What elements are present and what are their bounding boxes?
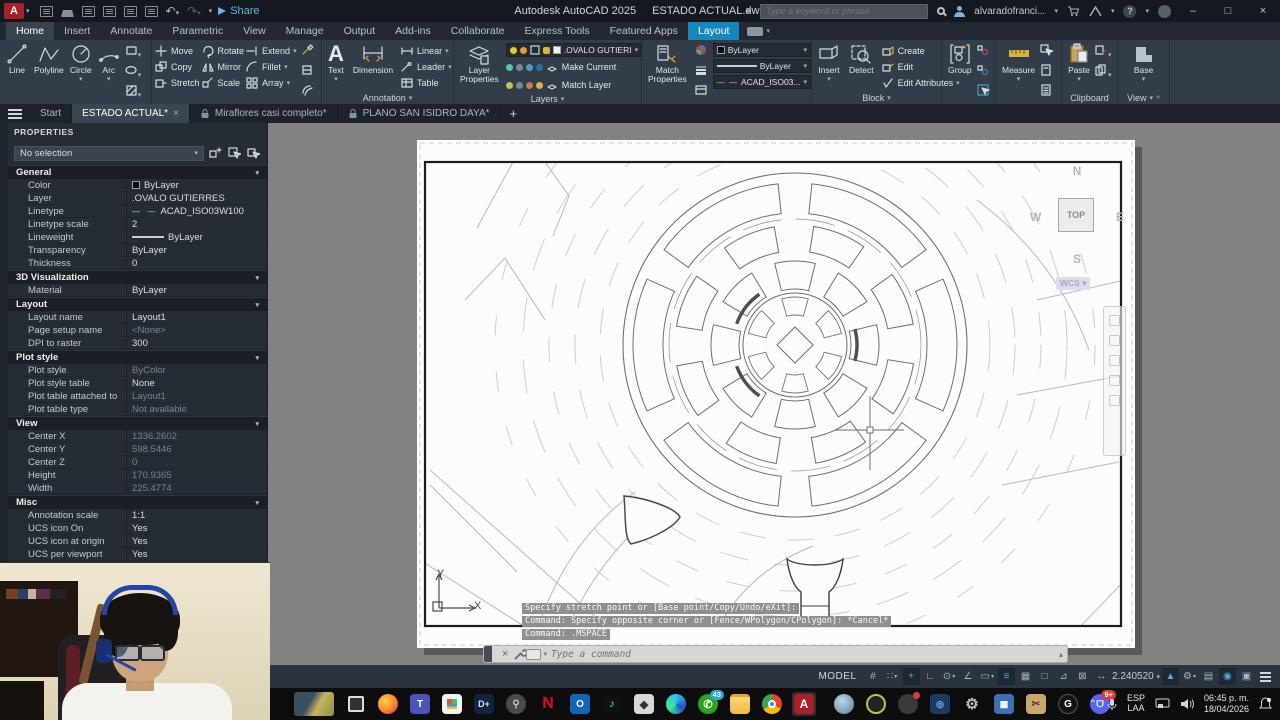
object-snap-tracking-icon[interactable]: ▭▾ bbox=[979, 668, 996, 685]
linetype-dropdown[interactable]: — — ACAD_ISO03... ▾ bbox=[713, 75, 811, 89]
command-line[interactable]: × ▾ ▴ bbox=[483, 645, 1068, 663]
prop-row-annotation-scale: Annotation scale1:1 bbox=[8, 509, 267, 522]
display-cast-icon[interactable] bbox=[1155, 698, 1170, 710]
explode-tool-icon[interactable] bbox=[301, 64, 314, 82]
ribbon: Line Polyline Circle▾ Arc▾ ▾ ▾ ▾ Draw▾ bbox=[0, 40, 1280, 104]
autocad-logo[interactable]: A bbox=[4, 3, 24, 19]
transparency-icon[interactable]: ▦ bbox=[1017, 668, 1034, 685]
notion-icon[interactable]: ◆ bbox=[632, 692, 656, 716]
ellipse-tool-icon[interactable]: ▾ bbox=[125, 64, 142, 82]
file-tab-menu-icon[interactable] bbox=[0, 104, 30, 123]
autocad-taskbar-icon[interactable]: A bbox=[792, 692, 816, 716]
camera-app-icon[interactable] bbox=[864, 692, 888, 716]
ribbon-tab-featured-apps[interactable]: Featured Apps bbox=[600, 22, 688, 40]
section-general[interactable]: General▾ bbox=[8, 165, 267, 179]
point-style-icon[interactable] bbox=[1040, 84, 1053, 102]
navigation-bar[interactable] bbox=[1103, 306, 1126, 456]
undo-icon[interactable]: ↶▾ bbox=[166, 5, 180, 17]
polar-tracking-icon[interactable]: ⊙▾ bbox=[941, 668, 958, 685]
logo-dropdown-icon[interactable]: ▾ bbox=[26, 8, 30, 15]
fillet-button[interactable]: Fillet▾ bbox=[246, 59, 297, 75]
prop-row-ucs-per-viewport: UCS per viewportYes bbox=[8, 548, 267, 561]
ribbon-tab-express-tools[interactable]: Express Tools bbox=[514, 22, 599, 40]
toggle-pickadd-icon[interactable] bbox=[208, 146, 223, 160]
settings-gear-icon[interactable]: ⚙ bbox=[960, 692, 984, 716]
chrome-icon[interactable] bbox=[760, 692, 784, 716]
ribbon-display-options-icon[interactable]: ▾ bbox=[747, 22, 770, 40]
select-objects-icon[interactable] bbox=[227, 146, 242, 160]
calculator-icon[interactable]: ▦ bbox=[992, 692, 1016, 716]
orbit-icon[interactable] bbox=[1109, 375, 1120, 386]
plan-drawing bbox=[417, 140, 1135, 648]
webcam-person-glasses bbox=[115, 645, 165, 658]
viewcube-north[interactable]: N bbox=[1030, 164, 1124, 178]
command-close-icon[interactable]: × bbox=[502, 648, 508, 660]
color-swatch bbox=[132, 181, 140, 189]
insert-block-button[interactable]: Insert▾ bbox=[815, 43, 843, 83]
ucs-x-label: X bbox=[474, 600, 481, 612]
prop-row-color: ColorByLayer bbox=[8, 179, 267, 192]
save-as-icon[interactable] bbox=[103, 6, 116, 17]
share-button[interactable]: Share bbox=[218, 5, 259, 17]
leader-button[interactable]: Leader▾ bbox=[401, 59, 452, 75]
array-button[interactable]: Array▾ bbox=[246, 75, 297, 91]
rotate-button[interactable]: Rotate bbox=[202, 43, 245, 59]
close-tab-icon[interactable]: × bbox=[173, 108, 179, 119]
app-store-cart-icon[interactable] bbox=[1067, 5, 1080, 17]
maximize-button[interactable]: □ bbox=[1215, 0, 1241, 22]
copy-button[interactable]: Copy bbox=[155, 59, 200, 75]
microphone-icon[interactable] bbox=[1107, 698, 1117, 711]
layer-on-icon bbox=[510, 47, 517, 54]
prop-row-linetype-scale: Linetype scale2 bbox=[8, 218, 267, 231]
group-edit-icon[interactable] bbox=[977, 64, 990, 82]
tab-estado-actual[interactable]: ESTADO ACTUAL* × bbox=[72, 104, 190, 123]
ribbon-tab-manage[interactable]: Manage bbox=[276, 22, 334, 40]
snap-mode-icon[interactable]: ∷▾ bbox=[884, 668, 901, 685]
ribbon-tab-addins[interactable]: Add-ins bbox=[385, 22, 441, 40]
match-properties-button[interactable]: Match Properties bbox=[645, 43, 690, 84]
share-icon bbox=[218, 7, 226, 15]
account-name[interactable]: alvaradofranci... bbox=[974, 6, 1045, 17]
quick-access-toolbar: ↶▾ ↷▾ ▾ bbox=[40, 5, 213, 17]
scale-button[interactable]: Scale bbox=[202, 75, 245, 91]
clean-screen-icon[interactable]: ▣ bbox=[1238, 668, 1255, 685]
command-history-line: Command: Specify opposite corner or [Fen… bbox=[522, 616, 891, 627]
command-history-line: Specify stretch point or [Base point/Cop… bbox=[522, 603, 799, 614]
prop-row-page-setup: Page setup name<None> bbox=[8, 324, 267, 337]
outlook-icon[interactable]: O bbox=[568, 692, 592, 716]
paste-button[interactable]: Paste▾ bbox=[1065, 43, 1093, 83]
rectangle-tool-icon[interactable]: ▾ bbox=[125, 44, 142, 62]
autodesk-icon[interactable] bbox=[1089, 6, 1102, 17]
ribbon-tab-annotate[interactable]: Annotate bbox=[100, 22, 162, 40]
prop-row-plot-table-type: Plot table typeNot available bbox=[8, 403, 267, 416]
quick-calc-icon[interactable] bbox=[1040, 64, 1053, 82]
prop-row-center-z: Center Z0 bbox=[8, 456, 267, 469]
prop-row-linetype: Linetype— —ACAD_ISO03W100 bbox=[8, 205, 267, 218]
clock[interactable]: 06:45 p. m.18/04/2026 bbox=[1204, 693, 1249, 715]
prop-row-thickness: Thickness0 bbox=[8, 257, 267, 270]
command-history: Specify stretch point or [Base point/Cop… bbox=[522, 603, 891, 640]
command-line-grip[interactable] bbox=[484, 646, 492, 662]
group-selection-icon[interactable] bbox=[977, 84, 990, 102]
panel-view: Base▾ View▾» bbox=[1118, 40, 1170, 104]
object-isolate-lock-icon[interactable]: ⊠ bbox=[1074, 668, 1091, 685]
recorder-icon[interactable] bbox=[896, 692, 920, 716]
ribbon-tab-parametric[interactable]: Parametric bbox=[162, 22, 233, 40]
lineweight-sample bbox=[132, 236, 164, 238]
erase-tool-icon[interactable] bbox=[301, 44, 314, 62]
logitech-ghub-icon[interactable]: G bbox=[1056, 692, 1080, 716]
plot-icon[interactable] bbox=[124, 6, 137, 17]
table-button[interactable]: Table bbox=[401, 75, 452, 91]
quick-select-icon[interactable] bbox=[1040, 44, 1053, 62]
lock-icon bbox=[348, 108, 358, 119]
group-button[interactable]: Group bbox=[945, 43, 975, 75]
title-bar: A ▾ ↶▾ ↷▾ ▾ Share Autodesk AutoCAD 2025 … bbox=[0, 0, 1280, 22]
command-input[interactable] bbox=[551, 649, 1055, 660]
print-icon[interactable] bbox=[145, 6, 158, 17]
match-layer-button[interactable]: Match Layer bbox=[506, 77, 642, 93]
prop-row-plot-style-table: Plot style tableNone bbox=[8, 377, 267, 390]
prop-row-material: MaterialByLayer bbox=[8, 284, 267, 297]
workspace-settings-gear-icon[interactable]: ⚙▾ bbox=[1181, 668, 1198, 685]
whatsapp-badge: 43 bbox=[710, 690, 724, 700]
drawing-canvas[interactable]: N W E S TOP WCS ▾ Y X Specify stretch po… bbox=[268, 123, 1280, 666]
account-dropdown-icon[interactable]: ▾ bbox=[1054, 8, 1058, 15]
google-earth-icon[interactable] bbox=[832, 692, 856, 716]
panel-utilities: Measure▾ Utilities▾ bbox=[996, 40, 1062, 104]
section-3d-visualization[interactable]: 3D Visualization▾ bbox=[8, 270, 267, 284]
microsoft-store-icon[interactable] bbox=[440, 692, 464, 716]
assistant-icon[interactable] bbox=[1158, 5, 1171, 18]
make-current-button[interactable]: Make Current bbox=[506, 59, 642, 75]
lineweight-dropdown[interactable]: ByLayer ▾ bbox=[713, 59, 811, 73]
new-drawing-tab-button[interactable]: + bbox=[501, 104, 527, 123]
ribbon-tab-layout[interactable]: Layout bbox=[688, 22, 740, 40]
prop-row-plot-style: Plot styleByColor bbox=[8, 364, 267, 377]
annotation-scale-value[interactable]: 2.240520 ▾ bbox=[1112, 671, 1160, 682]
text-button[interactable]: A Text▾ bbox=[325, 43, 347, 83]
section-plot-style[interactable]: Plot style▾ bbox=[8, 350, 267, 364]
file-tab-bar: Start ESTADO ACTUAL* × Miraflores casi c… bbox=[0, 104, 1280, 123]
prop-row-center-y: Center Y598.5446 bbox=[8, 443, 267, 456]
panel-properties: Match Properties ByLayer ▾ ByLayer ▾ bbox=[642, 40, 812, 104]
prop-row-ucs-icon-on: UCS icon OnYes bbox=[8, 522, 267, 535]
speaker-icon[interactable] bbox=[1180, 698, 1194, 710]
linetype-sample: — — bbox=[132, 207, 156, 216]
minimize-button[interactable]: – bbox=[1180, 0, 1206, 22]
pan-icon[interactable] bbox=[1109, 335, 1120, 346]
detect-button[interactable]: Detect bbox=[846, 43, 877, 75]
keys-app-icon[interactable]: ⚲ bbox=[504, 692, 528, 716]
showmotion-icon[interactable] bbox=[1109, 395, 1120, 406]
viewcube-top-face[interactable]: TOP bbox=[1058, 198, 1094, 232]
layer-properties-button[interactable]: Layer Properties bbox=[457, 43, 502, 84]
layer-color-swatch bbox=[553, 46, 561, 54]
circle-button[interactable]: Circle▾ bbox=[67, 43, 95, 83]
panel-annotation: A Text▾ Dimension Linear▾ Leader▾ Table … bbox=[322, 40, 454, 104]
ribbon-tab-output[interactable]: Output bbox=[334, 22, 386, 40]
layer-freeze-icon bbox=[520, 47, 527, 54]
isolate-objects-icon[interactable]: ▤ bbox=[1200, 668, 1217, 685]
recent-commands-icon[interactable] bbox=[526, 649, 541, 660]
webcam-overlay bbox=[0, 562, 270, 720]
lock-icon bbox=[200, 108, 210, 119]
prop-row-ucs-icon-origin: UCS icon at originYes bbox=[8, 535, 267, 548]
quick-select-icon[interactable] bbox=[246, 146, 261, 160]
language-indicator[interactable]: ESPLAA bbox=[1127, 694, 1145, 714]
task-view-icon[interactable] bbox=[344, 692, 368, 716]
palette-title: PROPERTIES bbox=[14, 127, 74, 137]
hardware-acceleration-icon[interactable]: ◉ bbox=[1219, 668, 1236, 685]
prop-row-width: Width225.4774 bbox=[8, 482, 267, 495]
selection-cycling-icon[interactable]: □ bbox=[1036, 668, 1053, 685]
edge-icon[interactable] bbox=[664, 692, 688, 716]
measure-button[interactable]: Measure▾ bbox=[999, 43, 1038, 83]
linear-dimension-button[interactable]: Linear▾ bbox=[401, 43, 452, 59]
layer-lock-icon bbox=[543, 47, 550, 54]
open-file-icon[interactable] bbox=[61, 10, 74, 17]
tab-miraflores[interactable]: Miraflores casi completo* bbox=[190, 104, 338, 123]
tab-plano-san-isidro[interactable]: PLANO SAN ISIDRO DAYA* bbox=[338, 104, 501, 123]
ribbon-tab-insert[interactable]: Insert bbox=[54, 22, 100, 40]
viewcube-west[interactable]: W bbox=[1030, 210, 1041, 224]
photoshop-psd-icon[interactable]: ◎ bbox=[928, 692, 952, 716]
ungroup-icon[interactable] bbox=[977, 44, 990, 62]
account-icon[interactable] bbox=[954, 6, 965, 17]
lineweight-list-icon[interactable] bbox=[695, 64, 708, 82]
model-space-toggle[interactable]: MODEL bbox=[818, 671, 856, 682]
command-tools-wrench-icon[interactable] bbox=[513, 648, 526, 661]
base-view-button[interactable]: Base▾ bbox=[1130, 43, 1158, 83]
search-icon[interactable] bbox=[937, 7, 945, 15]
3d-object-snap-icon[interactable]: ⊿ bbox=[1055, 668, 1072, 685]
tiktok-icon[interactable]: ♪ bbox=[600, 692, 624, 716]
help-dropdown-icon[interactable]: ▾ bbox=[1145, 8, 1149, 15]
lineweight-display-icon[interactable]: ≡ bbox=[998, 668, 1015, 685]
ucs-y-label: Y bbox=[437, 568, 444, 580]
firefox-icon[interactable] bbox=[376, 692, 400, 716]
notification-bell-icon[interactable] bbox=[1259, 697, 1272, 711]
section-misc[interactable]: Misc▾ bbox=[8, 495, 267, 509]
ribbon-tab-home[interactable]: Home bbox=[6, 22, 54, 40]
autodesk-dropdown-icon[interactable]: ▾ bbox=[1111, 8, 1115, 15]
viewcube-wcs-menu[interactable]: WCS ▾ bbox=[1056, 277, 1090, 290]
layer-viewport-icon bbox=[530, 45, 540, 55]
annotation-visibility-icon[interactable]: ▲ bbox=[1162, 668, 1179, 685]
panel-layers: Layer Properties .OVALO GUTIERI ▾ Make C… bbox=[454, 40, 642, 104]
prop-row-dpi: DPI to raster300 bbox=[8, 337, 267, 350]
copy-clip-icon[interactable]: ▾ bbox=[1095, 64, 1112, 82]
layer-dropdown[interactable]: .OVALO GUTIERI ▾ bbox=[506, 43, 642, 57]
prop-row-layout-name: Layout nameLayout1 bbox=[8, 311, 267, 324]
file-explorer-icon[interactable] bbox=[728, 692, 752, 716]
line-button[interactable]: Line bbox=[3, 43, 31, 75]
color-swatch bbox=[717, 46, 725, 54]
panel-groups: Group Groups▾ bbox=[942, 40, 996, 104]
panel-modify: Move Copy Stretch Rotate Mirror Scale Ex… bbox=[152, 40, 322, 104]
panel-title-layers[interactable]: Layers▾ bbox=[454, 93, 641, 104]
section-view[interactable]: View▾ bbox=[8, 416, 267, 430]
polyline-button[interactable]: Polyline bbox=[31, 43, 67, 75]
prop-row-plot-table-attached: Plot table attached toLayout1 bbox=[8, 390, 267, 403]
help-icon[interactable]: ? bbox=[1123, 5, 1136, 18]
color-wheel-icon[interactable] bbox=[695, 44, 708, 62]
customization-menu-icon[interactable] bbox=[1257, 668, 1274, 685]
full-navigation-wheel-icon[interactable] bbox=[1109, 315, 1120, 326]
cut-icon[interactable]: ▾ bbox=[1095, 44, 1112, 62]
panel-title-block[interactable]: Block▾ bbox=[812, 91, 941, 104]
grid-icon[interactable]: # bbox=[865, 668, 882, 685]
layout-paper[interactable]: N W E S TOP WCS ▾ Y X Specify stretch po… bbox=[417, 140, 1135, 648]
panel-block: Insert▾ Detect Create Edit Edit Attribut… bbox=[812, 40, 942, 104]
close-button[interactable]: × bbox=[1250, 0, 1276, 22]
hatch-tool-icon[interactable]: ▾ bbox=[125, 84, 142, 102]
ribbon-tab-view[interactable]: View bbox=[233, 22, 276, 40]
prop-row-height: Height170.9365 bbox=[8, 469, 267, 482]
share-label: Share bbox=[230, 5, 259, 17]
arc-button[interactable]: Arc▾ bbox=[95, 43, 123, 83]
prop-row-transparency: TransparencyByLayer bbox=[8, 244, 267, 257]
lineweight-sample bbox=[717, 65, 757, 67]
webcam-dark-corner bbox=[0, 681, 44, 720]
panel-title-view[interactable]: View▾» bbox=[1118, 91, 1169, 104]
viewcube[interactable]: N W E S TOP WCS ▾ bbox=[1030, 164, 1124, 290]
qat-customize-icon[interactable]: ▾ bbox=[209, 8, 213, 15]
redo-icon[interactable]: ↷▾ bbox=[187, 5, 201, 17]
netflix-icon[interactable]: N bbox=[536, 692, 560, 716]
new-file-icon[interactable] bbox=[40, 6, 53, 17]
teams-icon[interactable]: T bbox=[408, 692, 432, 716]
ribbon-tab-bar: Home Insert Annotate Parametric View Man… bbox=[0, 22, 1280, 40]
plot-style-icon[interactable] bbox=[695, 84, 708, 102]
app-title: Autodesk AutoCAD 2025 bbox=[514, 5, 636, 17]
keyword-search-input[interactable] bbox=[760, 4, 928, 19]
snipping-tool-icon[interactable]: ✂ bbox=[1024, 692, 1048, 716]
panel-draw: Line Polyline Circle▾ Arc▾ ▾ ▾ ▾ Draw▾ bbox=[0, 40, 152, 104]
weather-widget[interactable] bbox=[294, 692, 334, 716]
panel-title-clipboard[interactable]: Clipboard bbox=[1062, 91, 1117, 104]
prop-row-layer: Layer.OVALO GUTIERRES bbox=[8, 192, 267, 205]
dimension-button[interactable]: Dimension bbox=[350, 43, 396, 75]
command-history-expand-icon[interactable]: ▴ bbox=[1055, 650, 1067, 659]
linetype-sample: — — bbox=[717, 78, 738, 87]
webcam-headset-earcup bbox=[96, 639, 112, 663]
tray-expand-icon[interactable]: ⌃ bbox=[1089, 699, 1097, 710]
selection-dropdown[interactable]: No selection▾ bbox=[14, 146, 204, 161]
view-panel-launcher-icon: » bbox=[1156, 94, 1160, 101]
zoom-extents-icon[interactable] bbox=[1109, 355, 1120, 366]
section-layout[interactable]: Layout▾ bbox=[8, 297, 267, 311]
search-expand-icon[interactable]: ▸ bbox=[747, 7, 751, 15]
viewcube-east[interactable]: E bbox=[1116, 210, 1124, 224]
object-color-dropdown[interactable]: ByLayer ▾ bbox=[713, 43, 811, 57]
move-button[interactable]: Move bbox=[155, 43, 200, 59]
panel-clipboard: Paste▾ ▾ ▾ Clipboard bbox=[1062, 40, 1118, 104]
prop-row-lineweight: LineweightByLayer bbox=[8, 231, 267, 244]
disney-plus-icon[interactable]: D+ bbox=[472, 692, 496, 716]
panel-title-annotation[interactable]: Annotation▾ bbox=[322, 91, 453, 104]
save-icon[interactable] bbox=[82, 6, 95, 17]
viewcube-south[interactable]: S bbox=[1030, 252, 1124, 266]
prop-row-center-x: Center X1336.2602 bbox=[8, 430, 267, 443]
autoscale-icon[interactable]: ↔ bbox=[1093, 668, 1110, 685]
extend-button[interactable]: Extend▾ bbox=[246, 43, 297, 59]
mirror-button[interactable]: Mirror bbox=[202, 59, 245, 75]
dynamic-input-icon[interactable]: + bbox=[903, 668, 920, 685]
ortho-mode-icon[interactable]: ∟ bbox=[922, 668, 939, 685]
whatsapp-icon[interactable]: ✆43 bbox=[696, 692, 720, 716]
isodraft-icon[interactable]: ∠ bbox=[960, 668, 977, 685]
stretch-button[interactable]: Stretch bbox=[155, 75, 200, 91]
command-history-line: Command: .MSPACE bbox=[522, 629, 610, 640]
ribbon-tab-collaborate[interactable]: Collaborate bbox=[441, 22, 515, 40]
webcam-headset-band bbox=[102, 585, 178, 615]
offset-tool-icon[interactable] bbox=[301, 84, 314, 102]
tab-start[interactable]: Start bbox=[30, 104, 72, 123]
